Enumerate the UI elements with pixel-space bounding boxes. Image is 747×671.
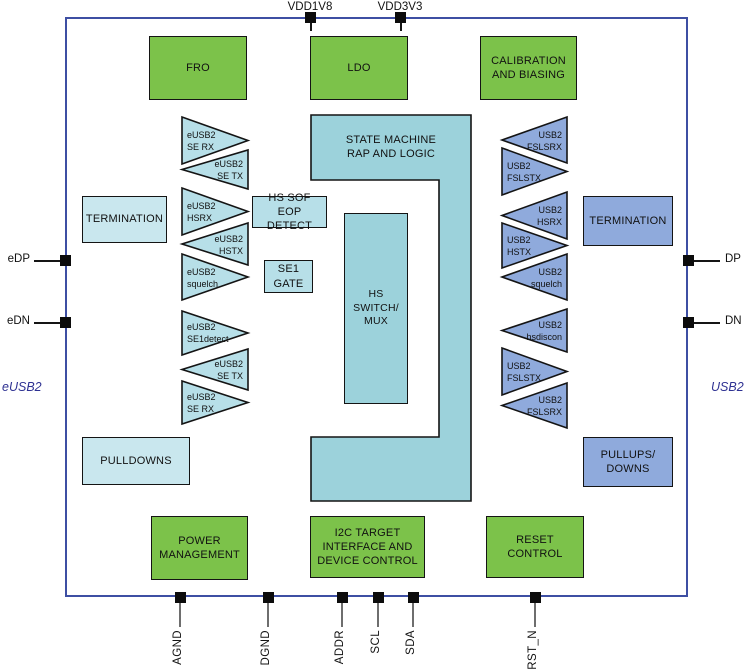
usb2-fslsrx-top-label2: FSLSRX (527, 142, 562, 152)
usb2-fslsrx-bottom-label2: FSLSRX (527, 407, 562, 417)
usb2-fslstx-top-label1: USB2 (507, 161, 531, 171)
domain-label-usb2: USB2 (711, 380, 744, 394)
eusb2-se-tx-top-label2: SE TX (217, 171, 243, 181)
usb2-fslstx-bottom-label1: USB2 (507, 361, 531, 371)
block-calibration-biasing: CALIBRATION AND BIASING (480, 36, 577, 100)
pin-label-dn: DN (725, 315, 742, 327)
eusb2-se-rx-top-label2: SE RX (187, 142, 214, 152)
block-hs-switch-mux: HS SWITCH/ MUX (344, 213, 408, 404)
pin-label-sda: SDA (405, 630, 417, 655)
pin-pad-addr (337, 592, 348, 603)
pin-pad-dp (683, 255, 694, 266)
block-termination-left: TERMINATION (82, 196, 167, 243)
usb2-squelch-label1: USB2 (538, 267, 562, 277)
eusb2-hstx-label1: eUSB2 (214, 234, 243, 244)
pin-pad-vdd3v3 (395, 12, 406, 23)
pin-pad-dgnd (263, 592, 274, 603)
pin-label-edn: eDN (0, 315, 30, 327)
usb2-hstx-label1: USB2 (507, 235, 531, 245)
usb2-hsrx-label1: USB2 (538, 205, 562, 215)
block-se1-gate: SE1 GATE (264, 260, 313, 293)
eusb2-hsrx-label1: eUSB2 (187, 201, 216, 211)
usb2-fslsrx-top-label1: USB2 (538, 130, 562, 140)
block-fro: FRO (149, 36, 247, 100)
block-diagram: eUSB2 SE RX eUSB2 SE TX eUSB2 HSRX eUSB2… (0, 0, 747, 671)
usb2-hsdiscon-label2: hsdiscon (526, 332, 562, 342)
pin-pad-sda (408, 592, 419, 603)
pin-label-scl: SCL (370, 630, 382, 654)
pin-pad-dn (683, 317, 694, 328)
usb2-hsrx-label2: HSRX (537, 217, 562, 227)
eusb2-se1detect-triangle (182, 311, 248, 355)
pin-label-addr: ADDR (334, 630, 346, 664)
usb2-squelch-label2: squelch (531, 279, 562, 289)
pin-stub-addr (341, 603, 343, 627)
eusb2-se-tx-top-label1: eUSB2 (214, 159, 243, 169)
pin-pad-edp (60, 255, 71, 266)
eusb2-se-rx-bottom-label2: SE RX (187, 404, 214, 414)
eusb2-se-tx-bottom-label1: eUSB2 (214, 359, 243, 369)
usb2-hsdiscon-triangle (502, 309, 567, 352)
block-ldo: LDO (310, 36, 408, 100)
pin-stub-agnd (179, 603, 181, 627)
eusb2-se-rx-bottom-label1: eUSB2 (187, 392, 216, 402)
eusb2-se-tx-bottom-label2: SE TX (217, 371, 243, 381)
block-pulldowns: PULLDOWNS (82, 437, 190, 485)
eusb2-se1detect-label2: SE1detect (187, 334, 229, 344)
pin-wire-edn (34, 322, 61, 324)
block-reset-control: RESET CONTROL (486, 516, 584, 578)
pin-pad-edn (60, 317, 71, 328)
eusb2-se1detect-label1: eUSB2 (187, 322, 216, 332)
usb2-fslstx-top-label2: FSLSTX (507, 173, 541, 183)
pin-stub-dgnd (267, 603, 269, 627)
pin-stub-vdd1v8 (310, 23, 312, 31)
block-hs-sof-eop-detect: HS SOF EOP DETECT (252, 196, 327, 228)
pin-pad-vdd1v8 (305, 12, 316, 23)
eusb2-squelch-label2: squelch (187, 279, 218, 289)
state-machine-label: STATE MACHINE RAP AND LOGIC (336, 118, 446, 176)
pin-stub-sda (412, 603, 414, 627)
eusb2-hsrx-label2: HSRX (187, 213, 212, 223)
usb2-hsdiscon-label1: USB2 (538, 320, 562, 330)
usb2-hstx-label2: HSTX (507, 247, 531, 257)
pin-pad-scl (373, 592, 384, 603)
pin-label-dgnd: DGND (260, 630, 272, 665)
eusb2-se-rx-top-label1: eUSB2 (187, 130, 216, 140)
usb2-fslstx-bottom-label2: FSLSTX (507, 373, 541, 383)
pin-label-dp: DP (725, 253, 741, 265)
pin-label-rst-n: RST_N (527, 630, 539, 670)
block-pullups-downs: PULLUPS/ DOWNS (583, 437, 673, 487)
block-i2c-target: I2C TARGET INTERFACE AND DEVICE CONTROL (310, 516, 425, 578)
pin-pad-agnd (175, 592, 186, 603)
block-power-management: POWER MANAGEMENT (151, 516, 248, 580)
pin-stub-rst-n (534, 603, 536, 627)
pin-wire-dp (694, 260, 720, 262)
usb2-fslsrx-bottom-label1: USB2 (538, 395, 562, 405)
pin-pad-rst-n (530, 592, 541, 603)
pin-wire-edp (34, 260, 61, 262)
eusb2-hstx-label2: HSTX (219, 246, 243, 256)
pin-stub-vdd3v3 (400, 23, 402, 31)
block-termination-right: TERMINATION (583, 196, 673, 246)
pin-label-edp: eDP (0, 253, 30, 265)
pin-label-agnd: AGND (172, 630, 184, 665)
domain-label-eusb2: eUSB2 (2, 380, 42, 394)
eusb2-squelch-label1: eUSB2 (187, 267, 216, 277)
pin-stub-scl (377, 603, 379, 627)
pin-wire-dn (694, 322, 720, 324)
